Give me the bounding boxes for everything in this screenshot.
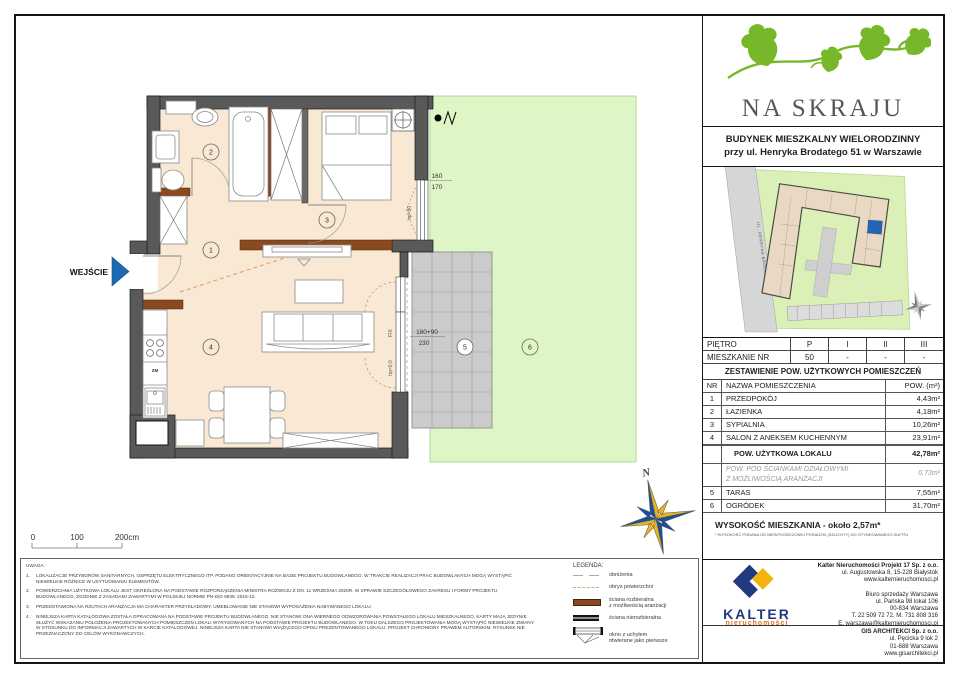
bed bbox=[322, 112, 391, 200]
total-area-value: 42,78m² bbox=[886, 446, 943, 463]
svg-text:1: 1 bbox=[209, 248, 213, 255]
kalter-contact-block: Kalter Nieruchomości Projekt 17 Sp. z o.… bbox=[811, 560, 943, 625]
svg-text:180+90: 180+90 bbox=[416, 329, 438, 336]
brand-logo-box: NA SKRAJU bbox=[703, 16, 943, 127]
note-item: 2.POWIERZCHNIA UŻYTKOWA LOKALU JEST OKRE… bbox=[26, 588, 536, 600]
bedroom-window bbox=[417, 180, 428, 240]
floor-col: I bbox=[829, 338, 867, 351]
outline-symbol-icon bbox=[573, 587, 599, 588]
floor-apartment-table: PIĘTRO P I II III MIESZKANIE NR 50 - - - bbox=[703, 337, 943, 364]
svg-text:160: 160 bbox=[432, 173, 443, 180]
building-address-box: BUDYNEK MIESZKALNY WIELORODZINNY przy ul… bbox=[703, 127, 943, 167]
floor-plan-drawing: ZM hp=80 FIX hp=0,0 160 170 180+90 230 W… bbox=[16, 16, 702, 556]
site-highlighted-unit bbox=[867, 220, 882, 234]
ivy-vine-logo-icon bbox=[716, 20, 931, 92]
legend: LEGENDA: obniżenia obrys powierzchni ści… bbox=[573, 563, 695, 654]
coffee-table bbox=[295, 280, 343, 303]
legend-item: okno z uchyłemotwierane jako pierwsze bbox=[573, 627, 695, 648]
title-block-panel: NA SKRAJU BUDYNEK MIESZKALNY WIELORODZIN… bbox=[702, 16, 943, 662]
table-row: 2ŁAZIENKA4,18m² bbox=[703, 406, 943, 419]
notes-title: UWAGA: bbox=[26, 563, 536, 569]
floor-col: II bbox=[867, 338, 905, 351]
table-row: 5TARAS7,55m² bbox=[703, 487, 943, 500]
catalog-sheet: { "header": { "project_name": "NA SKRAJU… bbox=[0, 0, 960, 678]
svg-text:230: 230 bbox=[419, 340, 430, 347]
svg-text:6: 6 bbox=[528, 345, 532, 352]
toilet-bowl bbox=[162, 170, 184, 190]
kitchen-counter bbox=[143, 310, 167, 418]
partition-area-row: POW. POD ŚCIANKAMI DZIAŁOWYMIZ MOŻLIWOŚC… bbox=[703, 464, 943, 487]
table-row: 6OGRÓDEK31,70m² bbox=[703, 500, 943, 513]
gis-contact-block: GIS ARCHITEKCI Sp. z o.o. ul. Pęcicka 9 … bbox=[703, 626, 943, 659]
total-area-row: POW. UŻYTKOWA LOKALU 42,78m² bbox=[703, 445, 943, 464]
toilet-tank bbox=[152, 168, 161, 192]
apartment-height-box: WYSOKOŚĆ MIESZKANIA - około 2,57m* * WYS… bbox=[703, 513, 943, 537]
apartment-value: - bbox=[905, 351, 943, 364]
kalter-wordmark: KALTER bbox=[703, 608, 811, 620]
legend-item: obrys powierzchni bbox=[573, 584, 695, 590]
height-label: WYSOKOŚĆ MIESZKANIA - około 2,57m* bbox=[715, 520, 943, 530]
hp0-label: hp=0,0 bbox=[388, 360, 394, 376]
note-item: 1.LOKALIZACJE PRZYBORÓW SANITARNYCH, OSP… bbox=[26, 573, 536, 585]
bath-cabinet bbox=[166, 101, 196, 114]
project-name: NA SKRAJU bbox=[703, 95, 943, 123]
site-plan-box: UL. HENRYKA BRODATEGO bbox=[703, 167, 943, 337]
sofa bbox=[262, 312, 374, 352]
entrance-marker: WEJŚCIE bbox=[70, 257, 129, 286]
scale-bar: 0 100 200cm bbox=[31, 533, 140, 548]
legend-title: LEGENDA: bbox=[573, 563, 695, 569]
fix-label: FIX bbox=[388, 328, 394, 336]
table-row: 1PRZEDPOKÓJ4,43m² bbox=[703, 393, 943, 406]
removable-wall-symbol-icon bbox=[573, 599, 601, 606]
fixed-wall-symbol-icon bbox=[573, 615, 599, 621]
building-line2: przy ul. Henryka Brodatego 51 w Warszawi… bbox=[703, 146, 943, 159]
shaft-box bbox=[136, 421, 168, 445]
svg-text:200cm: 200cm bbox=[115, 533, 139, 542]
svg-text:3: 3 bbox=[325, 218, 329, 225]
floor-col: III bbox=[905, 338, 943, 351]
floor-col: P bbox=[791, 338, 829, 351]
svg-text:4: 4 bbox=[209, 345, 213, 352]
kalter-logo-icon bbox=[729, 563, 785, 603]
room-circle-5: 5 bbox=[457, 339, 473, 355]
area-table: NR NAZWA POMIESZCZENIA POW. (m²) 1PRZEDP… bbox=[703, 380, 943, 513]
entrance-opening bbox=[129, 254, 144, 289]
area-table-header: NR NAZWA POMIESZCZENIA POW. (m²) bbox=[703, 380, 943, 393]
compass-rose: N bbox=[610, 459, 702, 556]
compass-north-label: N bbox=[640, 466, 652, 480]
svg-text:0: 0 bbox=[31, 533, 36, 542]
kalter-wordmark-sub: nieruchomości bbox=[703, 620, 811, 627]
apartment-value: 50 bbox=[791, 351, 829, 364]
lowering-symbol-icon bbox=[573, 575, 599, 576]
sideboard bbox=[283, 433, 378, 448]
kalter-logo: KALTER nieruchomości bbox=[703, 560, 811, 625]
table-row: 3SYPIALNIA10,26m² bbox=[703, 419, 943, 432]
svg-text:5: 5 bbox=[463, 345, 467, 352]
svg-text:2: 2 bbox=[209, 150, 213, 157]
total-area-label: POW. UŻYTKOWA LOKALU bbox=[722, 446, 886, 463]
hp80-label: hp=80 bbox=[407, 206, 413, 220]
building-line1: BUDYNEK MIESZKALNY WIELORODZINNY bbox=[703, 133, 943, 146]
note-item: 3.PRZEDSTAWIONA NA RZUTACH ARANŻACJA MA … bbox=[26, 604, 536, 610]
table-row: 4SALON Z ANEKSEM KUCHENNYM23,91m² bbox=[703, 432, 943, 445]
site-plan-drawing: UL. HENRYKA BRODATEGO bbox=[703, 167, 944, 337]
tilt-window-symbol-icon bbox=[573, 627, 603, 647]
entrance-label: WEJŚCIE bbox=[70, 266, 109, 277]
svg-text:170: 170 bbox=[432, 184, 443, 191]
note-item: 4.NINIEJSZA KARTA KATALOGOWA ZOSTAŁA OPR… bbox=[26, 614, 536, 637]
legend-item: ściana nierozbieralna bbox=[573, 615, 695, 621]
apartment-label: MIESZKANIE NR bbox=[703, 351, 791, 364]
zm-label: ZM bbox=[152, 368, 159, 373]
title-block-footer: KALTER nieruchomości Kalter Nieruchomośc… bbox=[703, 559, 943, 662]
legend-item: obniżenia bbox=[573, 572, 695, 578]
ceiling-point-symbol bbox=[392, 109, 414, 131]
fridge bbox=[176, 420, 204, 446]
area-table-title: ZESTAWIENIE POW. UŻYTKOWYCH POMIESZCZEŃ bbox=[703, 364, 943, 380]
floor-label: PIĘTRO bbox=[703, 338, 791, 351]
notes-legend-strip: UWAGA: 1.LOKALIZACJE PRZYBORÓW SANITARNY… bbox=[20, 558, 699, 659]
disclaimer-notes: UWAGA: 1.LOKALIZACJE PRZYBORÓW SANITARNY… bbox=[26, 563, 536, 637]
apartment-value: - bbox=[829, 351, 867, 364]
partition-wall-gray bbox=[302, 109, 308, 203]
legend-item: ściana rozbieralnaz możliwością aranżacj… bbox=[573, 597, 695, 610]
svg-text:100: 100 bbox=[70, 533, 84, 542]
apartment-value: - bbox=[867, 351, 905, 364]
height-footnote: * WYSOKOŚĆ PODANA OD NIEWYKOŃCZONEJ POSA… bbox=[715, 532, 943, 537]
entrance-arrow-icon bbox=[112, 257, 129, 286]
